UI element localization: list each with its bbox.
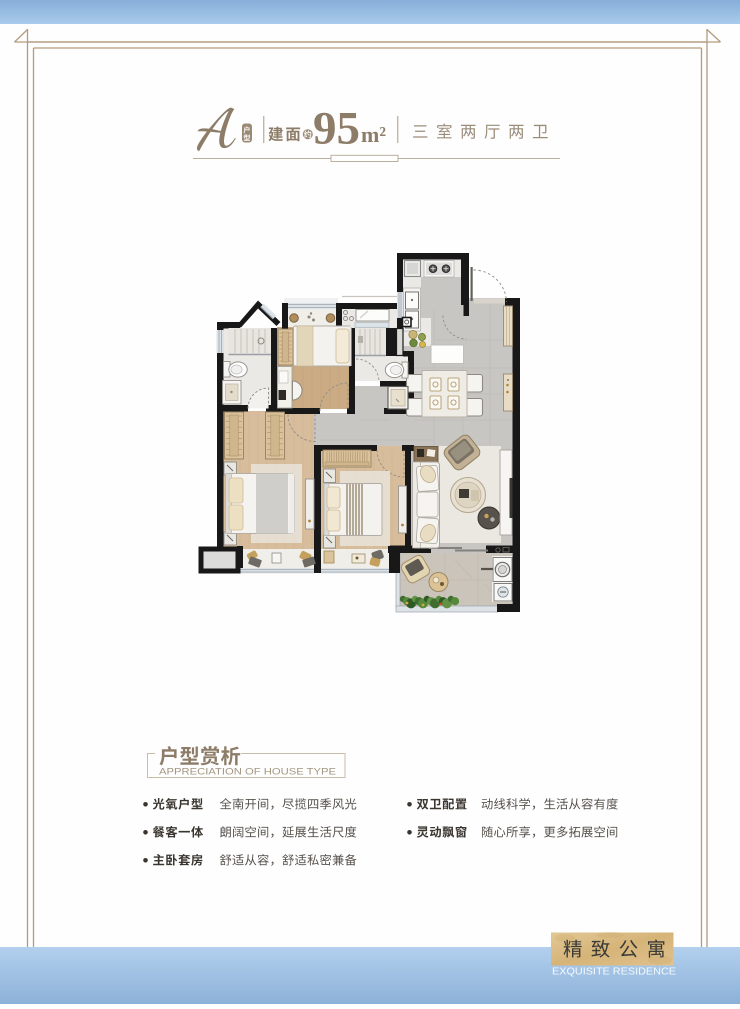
svg-text:95: 95 [313,103,360,155]
svg-text:EXQUISITE RESIDENCE: EXQUISITE RESIDENCE [552,967,676,978]
svg-text:APPRECIATION OF HOUSE TYPE: APPRECIATION OF HOUSE TYPE [159,767,336,778]
svg-text:m²: m² [361,122,386,147]
